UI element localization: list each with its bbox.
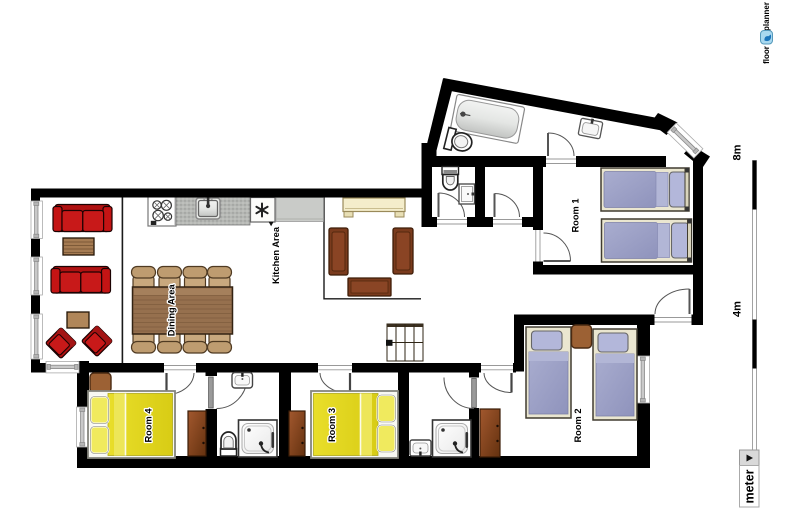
svg-text:Room 4: Room 4: [144, 408, 154, 443]
svg-text:Room 3: Room 3: [327, 408, 337, 442]
svg-text:meter: meter: [743, 469, 757, 503]
svg-text:8m: 8m: [732, 144, 744, 160]
svg-text:Room 1: Room 1: [571, 198, 581, 232]
svg-text:planner: planner: [762, 2, 771, 31]
svg-text:Dining Area: Dining Area: [167, 284, 177, 337]
svg-text:floor: floor: [762, 46, 771, 64]
svg-text:4m: 4m: [732, 301, 744, 317]
svg-text:Room 2: Room 2: [573, 408, 583, 442]
svg-text:Kitchen Area: Kitchen Area: [271, 226, 281, 284]
